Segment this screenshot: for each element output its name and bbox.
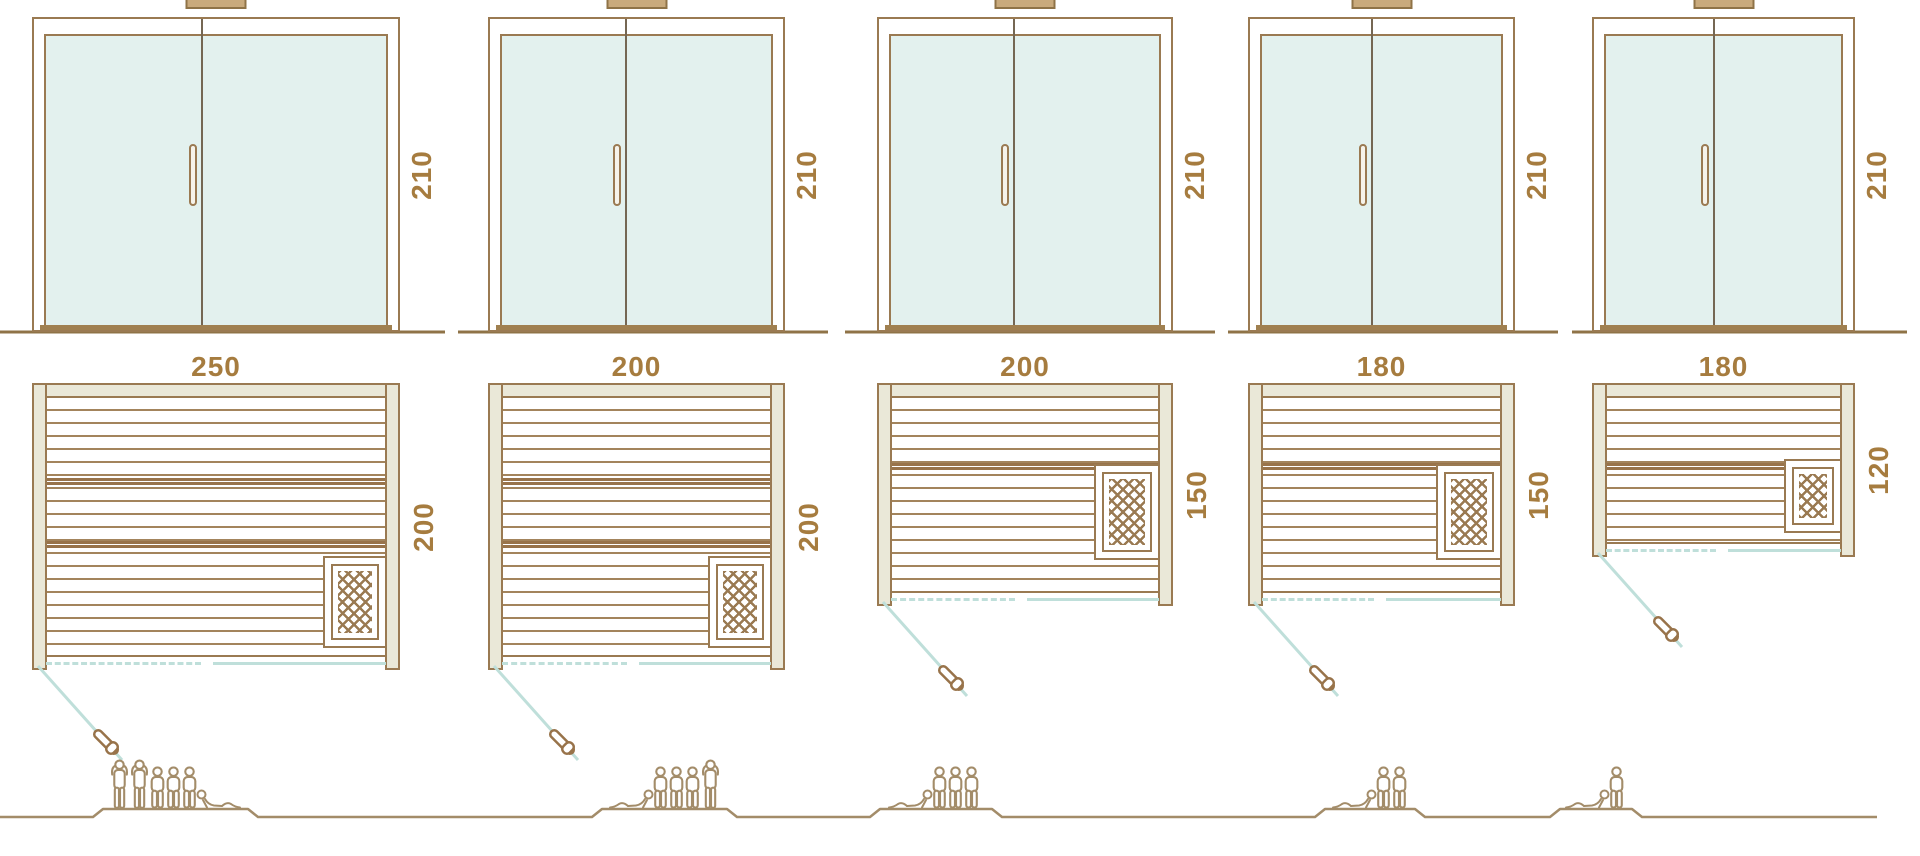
depth-dimension: 150: [1524, 455, 1554, 535]
sauna-unit-3: 210 200 150: [877, 0, 1173, 856]
wall: [488, 383, 503, 670]
door-swing-icon: [490, 662, 620, 774]
capacity-group-3: [875, 766, 993, 809]
door-handle-icon: [613, 144, 621, 206]
capacity-group-2: [600, 759, 730, 809]
door-sill: [1600, 325, 1847, 330]
width-dimension: 200: [488, 352, 785, 382]
heater-crosshatch-icon: [338, 571, 372, 633]
person-standing-icon: [699, 759, 722, 809]
heater-area: [1784, 459, 1842, 533]
wall: [385, 383, 400, 670]
depth-dimension: 120: [1864, 430, 1894, 510]
door-sill: [496, 325, 777, 330]
floor-plan: 180 120: [1592, 383, 1855, 557]
door-swing-icon: [34, 662, 164, 774]
door-sill: [40, 325, 392, 330]
front-elevation: 210: [1248, 17, 1515, 332]
capacity-group-5: [1552, 766, 1637, 809]
front-elevation: 210: [1592, 17, 1855, 332]
floor-plan: 200 200: [488, 383, 785, 670]
bench-edge: [45, 478, 387, 485]
door-divider: [1013, 19, 1015, 330]
capacity-group-1: [100, 759, 250, 809]
heater-crosshatch-icon: [723, 571, 757, 633]
front-elevation: 210: [877, 17, 1173, 332]
door-divider: [625, 19, 627, 330]
person-sitting-icon: [1390, 766, 1409, 809]
glass-door: [889, 34, 1161, 328]
person-lying-head-right-icon: [1331, 788, 1377, 809]
sauna-unit-4: 210 180 150: [1248, 0, 1515, 856]
wall: [488, 383, 785, 398]
door-sill: [1256, 325, 1507, 330]
width-dimension: 200: [877, 352, 1173, 382]
wall: [1248, 383, 1515, 398]
roof-vent-bar: [186, 0, 247, 9]
depth-dimension: 150: [1182, 455, 1212, 535]
person-lying-head-right-icon: [887, 788, 933, 809]
width-dimension: 250: [32, 352, 400, 382]
person-lying-head-left-icon: [196, 788, 242, 809]
glass-door: [500, 34, 773, 328]
door-swing-icon: [1594, 549, 1724, 661]
door-handle-icon: [1001, 144, 1009, 206]
wall: [1592, 383, 1855, 398]
sauna-unit-5: 210 180 120: [1592, 0, 1855, 856]
person-lying-head-right-icon: [1564, 788, 1610, 809]
height-dimension: 210: [792, 135, 822, 215]
heater-crosshatch-icon: [1451, 479, 1487, 545]
roof-vent-bar: [606, 0, 667, 9]
floor-plan: 180 150: [1248, 383, 1515, 606]
glass-door: [44, 34, 388, 328]
glass-door: [1604, 34, 1843, 328]
sauna-size-diagram: 210 250 200 210 2: [0, 0, 1920, 856]
width-dimension: 180: [1592, 352, 1855, 382]
floor-plan: 200 150: [877, 383, 1173, 606]
glass-front-line: [1027, 598, 1159, 601]
door-divider: [201, 19, 203, 330]
depth-dimension: 200: [794, 487, 824, 567]
wall: [32, 383, 47, 670]
door-sill: [885, 325, 1165, 330]
height-dimension: 210: [1180, 135, 1210, 215]
heater-area: [1094, 464, 1160, 560]
wall: [877, 383, 1173, 398]
roof-vent-bar: [995, 0, 1056, 9]
heater-area: [1436, 464, 1502, 560]
wall: [1500, 383, 1515, 606]
floor-plan: 250 200: [32, 383, 400, 670]
glass-front-line: [213, 662, 386, 665]
front-elevation: 210: [488, 17, 785, 332]
height-dimension: 210: [1522, 135, 1552, 215]
person-sitting-icon: [962, 766, 981, 809]
depth-dimension: 200: [409, 487, 439, 567]
glass-front-line: [1728, 549, 1841, 552]
height-dimension: 210: [407, 135, 437, 215]
glass-front-line: [639, 662, 771, 665]
person-lying-head-right-icon: [608, 788, 654, 809]
front-elevation: 210: [32, 17, 400, 332]
wall: [1158, 383, 1173, 606]
door-swing-icon: [879, 598, 1009, 710]
wall: [1840, 383, 1855, 557]
door-divider: [1371, 19, 1373, 330]
height-dimension: 210: [1862, 135, 1892, 215]
glass-front-line: [1386, 598, 1501, 601]
bench-edge: [501, 541, 772, 548]
heater-crosshatch-icon: [1109, 479, 1145, 545]
bench-edge: [501, 478, 772, 485]
person-sitting-icon: [1607, 766, 1626, 809]
door-swing-icon: [1250, 598, 1380, 710]
bench-edge: [45, 541, 387, 548]
wall: [1592, 383, 1607, 557]
roof-vent-bar: [1351, 0, 1412, 9]
heater-area: [708, 556, 772, 648]
heater-area: [323, 556, 387, 648]
roof-vent-bar: [1693, 0, 1754, 9]
wall: [770, 383, 785, 670]
door-handle-icon: [1701, 144, 1709, 206]
door-divider: [1713, 19, 1715, 330]
wall: [1248, 383, 1263, 606]
wall: [877, 383, 892, 606]
glass-door: [1260, 34, 1503, 328]
heater-crosshatch-icon: [1799, 474, 1827, 518]
door-handle-icon: [1359, 144, 1367, 206]
capacity-group-4: [1320, 766, 1420, 809]
sauna-unit-1: 210 250 200: [32, 0, 400, 856]
width-dimension: 180: [1248, 352, 1515, 382]
door-handle-icon: [189, 144, 197, 206]
wall: [32, 383, 400, 398]
sauna-unit-2: 210 200 200: [488, 0, 785, 856]
